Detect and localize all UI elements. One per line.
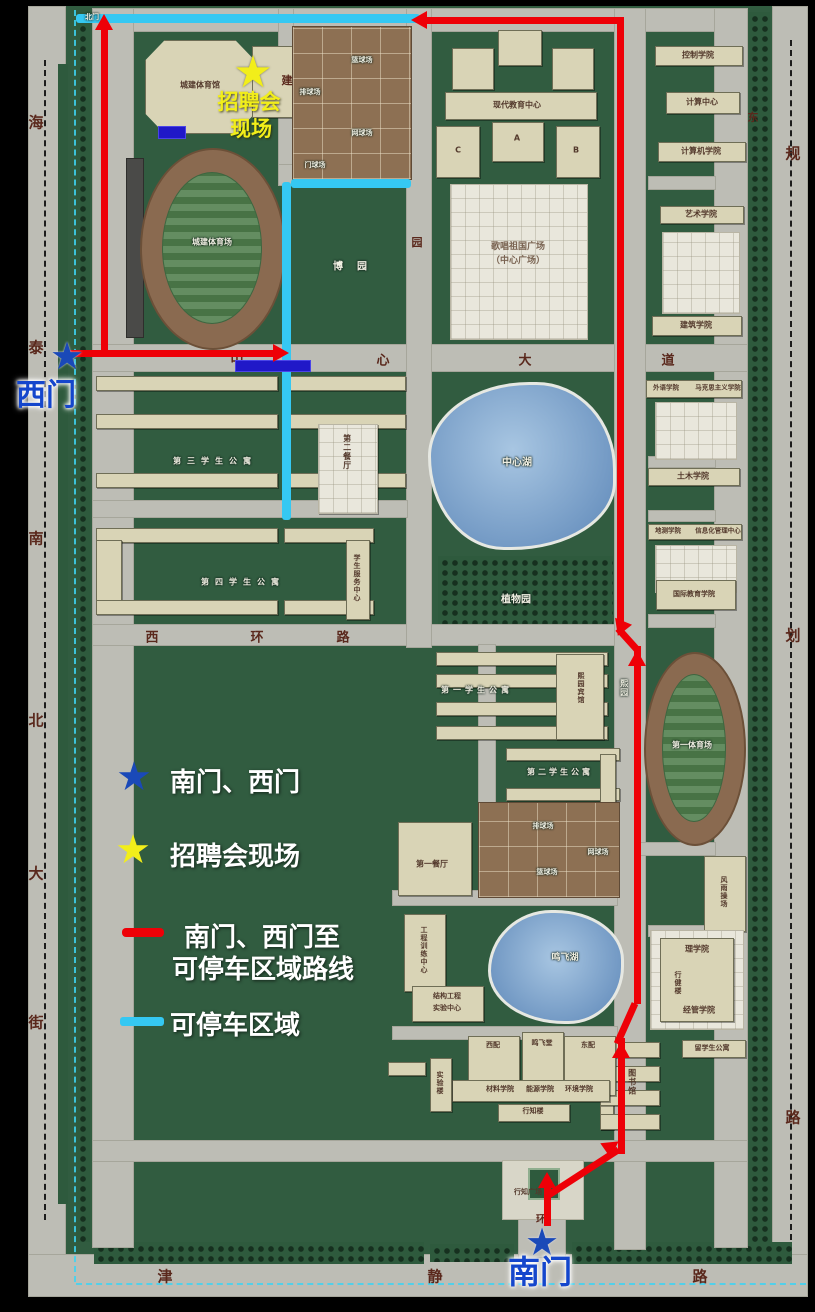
gym-label: 城建体育馆 — [180, 80, 220, 89]
stadium-field — [162, 172, 262, 324]
marxism-college-label: 马克思主义学院 — [695, 384, 741, 391]
east-annex-label: 东配 — [581, 1041, 595, 1049]
dorm3-bar-2 — [284, 376, 406, 391]
dorm3-bar-1 — [96, 376, 278, 391]
fair-site-label-2: 现场 — [230, 113, 272, 143]
fair-site-label-1: 招聘会 — [218, 86, 281, 116]
control-college-label: 控制学院 — [682, 50, 714, 59]
legend-fair-star-icon: ★ — [115, 830, 151, 870]
street-char: 海 — [28, 112, 43, 133]
modern-edu-east-wing — [552, 48, 594, 90]
street-char: 路 — [336, 627, 349, 646]
structure-lab-label-2: 实验中心 — [433, 1004, 461, 1012]
management-college-label: 经管学院 — [683, 1005, 715, 1014]
canteen2-label: 第二餐厅 — [342, 434, 351, 470]
parking-band-north — [76, 14, 420, 23]
art-college-label: 艺术学院 — [685, 209, 717, 218]
street-char: 园 — [412, 234, 423, 250]
xingzhi-building-label: 行知楼 — [523, 1107, 544, 1115]
mingfei-lake-label: 鸣飞湖 — [551, 953, 578, 963]
street-char: 北 — [28, 710, 43, 731]
west-tree-row — [76, 12, 90, 1242]
intl-edu-label: 国际教育学院 — [673, 590, 715, 598]
service-center-label: 学生服务中心 — [353, 554, 361, 602]
south-tree-row-2 — [430, 1244, 514, 1262]
dorm1-label: 第一学生公寓 — [441, 685, 513, 694]
materials-label: 材料学院 — [486, 1085, 514, 1093]
street-char: 划 — [785, 625, 800, 646]
route-west-gate-north — [101, 30, 108, 356]
west-avenue-median — [58, 64, 68, 1204]
info-center-label: 信息化管理中心 — [695, 527, 741, 534]
route-spine-north — [617, 20, 624, 630]
street-char: 心 — [376, 350, 389, 369]
art-courtyard — [662, 232, 740, 314]
basketball-label: 篮球场 — [352, 56, 373, 64]
xiyuan-hotel-label: 熙园宾馆 — [577, 672, 585, 704]
west-avenue-lane-line — [44, 60, 46, 1220]
south-gate-label: 南门 — [508, 1247, 572, 1293]
south-tree-row-1 — [94, 1242, 424, 1264]
modern-edu-west-wing — [452, 48, 494, 90]
dorm3-label: 第三学生公寓 — [173, 456, 257, 465]
central-lake-label: 中心湖 — [502, 457, 532, 469]
south-plaza-road — [92, 1140, 748, 1162]
legend-gates-label: 南门、西门 — [170, 762, 300, 799]
route-arrowhead-right — [273, 344, 289, 362]
block-b-label: B — [573, 145, 579, 154]
street-char: 街 — [28, 1012, 43, 1033]
street-char: 环 — [250, 627, 263, 646]
lab-annex-building — [388, 1062, 426, 1076]
dorm4-label: 第四学生公寓 — [201, 577, 285, 586]
gateball-label: 门球场 — [305, 161, 326, 169]
sports-courts-nw — [292, 26, 412, 180]
legend-route-swatch — [122, 928, 164, 937]
route-west-gate-east — [70, 350, 282, 357]
botanic-label: 植物园 — [501, 594, 531, 606]
plaza-label-1: 歌唱祖国广场 — [491, 242, 545, 252]
xingzhi-plaza-label: 行知广场 — [514, 1188, 542, 1196]
canteen1-label: 第一餐厅 — [416, 859, 448, 868]
foreign-courtyard — [655, 402, 737, 460]
west-annex-label: 西配 — [486, 1041, 500, 1049]
banner-sign-1 — [158, 126, 186, 139]
street-char: 津 — [157, 1266, 172, 1287]
block-a-label: A — [514, 133, 520, 142]
south-tree-row-3 — [572, 1242, 792, 1264]
east-tree-row — [748, 12, 770, 1248]
plaza-label-2: （中心广场） — [491, 256, 545, 266]
tennis2-label: 网球场 — [588, 848, 609, 856]
tennis-label: 网球场 — [352, 129, 373, 137]
street-char: 大 — [518, 350, 531, 369]
foreign-college-label: 外语学院 — [653, 384, 679, 391]
route-arrowhead-gate — [538, 1172, 556, 1188]
street-char: 西 — [145, 627, 158, 646]
basketball2-label: 篮球场 — [537, 868, 558, 876]
legend-parking-swatch — [120, 1017, 164, 1026]
computing-center-label: 计算中心 — [686, 97, 718, 106]
dorm3-bar-3 — [96, 414, 278, 429]
civil-college-label: 土木学院 — [677, 471, 709, 480]
inner-east-road — [714, 8, 748, 1248]
modern-edu-tower — [498, 30, 542, 66]
block-c-label: C — [455, 145, 461, 154]
north-gate-label: 北门 — [85, 13, 99, 21]
parking-band-boyuan-north — [291, 179, 411, 188]
library-bar-4 — [600, 1114, 660, 1130]
street-char: 规 — [785, 143, 800, 164]
environment-label: 环境学院 — [565, 1085, 593, 1093]
route-arrowhead-left — [411, 11, 427, 29]
xingjian-building-label: 行健楼 — [674, 971, 682, 995]
volleyball2-label: 排球场 — [533, 822, 554, 830]
legend-route-label-2: 可停车区域路线 — [172, 949, 354, 986]
mingfei-hall-label: 鸣飞堂 — [532, 1039, 553, 1047]
dorm4-bar-3 — [96, 600, 278, 615]
street-char: 大 — [28, 863, 43, 884]
energy-label: 能源学院 — [526, 1085, 554, 1093]
xiyuan-garden-label: 熙园 — [619, 679, 628, 697]
library-label: 图书馆 — [627, 1069, 636, 1096]
street-char: 南 — [28, 528, 43, 549]
intl-dorm-label: 留学生公寓 — [695, 1044, 730, 1052]
campus-fence-west — [74, 10, 76, 1282]
training-center-label: 工程训练中心 — [420, 926, 428, 974]
street-char: 静 — [427, 1266, 442, 1287]
street-char: 道 — [661, 350, 674, 369]
street-char: 路 — [785, 1107, 800, 1128]
dorm4-bar-1 — [96, 528, 278, 543]
science-college-label: 理学院 — [685, 944, 709, 953]
east-block-road-3 — [648, 510, 716, 522]
computer-college-label: 计算机学院 — [681, 146, 721, 155]
dorm3-bar-5 — [96, 473, 278, 488]
route-spine-mid — [634, 646, 641, 1004]
east-block-road-1 — [648, 176, 716, 190]
east-block-road-4 — [648, 614, 716, 628]
street-char: 泰 — [28, 337, 43, 358]
stadium1-label: 第一体育场 — [672, 740, 712, 749]
street-char: 路 — [692, 1266, 707, 1287]
street-char: 建 — [282, 72, 293, 88]
playground-label: 风雨操场 — [720, 876, 728, 908]
legend-gate-star-icon: ★ — [116, 757, 152, 797]
campus-map: 城建体育馆 城建体育场 篮球场 排球场 网球场 门球场 现代教育中心 A C B… — [0, 0, 815, 1312]
volleyball-label: 排球场 — [300, 88, 321, 96]
street-char: 东 — [748, 109, 759, 125]
legend-parking-label: 可停车区域 — [170, 1005, 300, 1042]
dorm2-label: 第二学生公寓 — [527, 767, 593, 776]
legend-fair-label: 招聘会现场 — [170, 836, 300, 873]
mingfei-lake — [488, 910, 624, 1024]
route-arrowhead-mid — [628, 650, 646, 666]
west-ring-road — [92, 624, 622, 646]
botanic-garden — [438, 556, 613, 624]
stadium-label: 城建体育场 — [192, 237, 232, 246]
lab-building-label: 实验楼 — [436, 1071, 444, 1095]
architecture-college-label: 建筑学院 — [680, 320, 712, 329]
route-top-westbound — [424, 17, 624, 24]
modern-edu-label: 现代教育中心 — [493, 100, 541, 109]
structure-lab-label-1: 结构工程 — [433, 992, 461, 1000]
boyuan-label: 博园 — [333, 261, 381, 273]
west-gate-label: 西门 — [16, 370, 76, 414]
geomatics-label: 地测学院 — [655, 527, 681, 534]
route-arrowhead-south-spine — [612, 1042, 630, 1058]
